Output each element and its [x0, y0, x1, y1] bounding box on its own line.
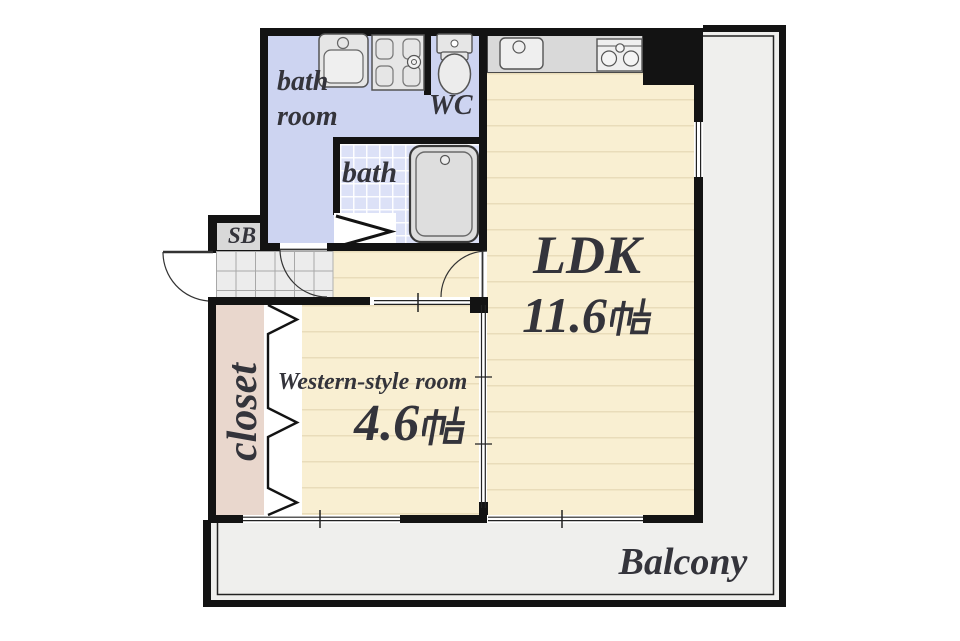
sliding-door [374, 293, 470, 312]
kitchen-sink-icon [500, 38, 543, 69]
entry-door [163, 252, 213, 301]
wc-label: WC [429, 90, 473, 122]
ldk-area: 11.6 [492, 286, 682, 344]
gas-stove-icon [597, 39, 642, 71]
window [243, 510, 400, 528]
plan-linework [0, 0, 960, 641]
western-room-area-number: 4.6 [354, 394, 419, 453]
window [696, 122, 700, 177]
bathroom-door [280, 250, 327, 298]
western-room-area: 4.6 [320, 394, 500, 453]
bathroom-label: bath room [277, 64, 338, 134]
western-room-name: Western-style room [266, 369, 479, 396]
ldk-door [441, 251, 487, 297]
washing-machine-pan-icon [372, 35, 424, 90]
jou-tatami-glyph [610, 295, 652, 337]
bathtub-icon [410, 146, 478, 242]
closet-folding-doors [268, 305, 297, 515]
shoe-box-label: SB [216, 223, 268, 249]
balcony-label: Balcony [598, 540, 768, 584]
closet-label: closet [219, 322, 263, 502]
window [488, 510, 643, 528]
bathroom-label-line2: room [277, 99, 338, 134]
toilet-icon [437, 34, 472, 94]
ldk-area-number: 11.6 [522, 286, 607, 344]
ldk-name: LDK [492, 224, 682, 286]
jou-tatami-glyph [422, 403, 466, 447]
bath-label: bath [342, 156, 397, 190]
bathroom-label-line1: bath [277, 64, 338, 99]
floor-plan: bath room WC bath SB LDK 11.6 Western-st… [0, 0, 960, 641]
